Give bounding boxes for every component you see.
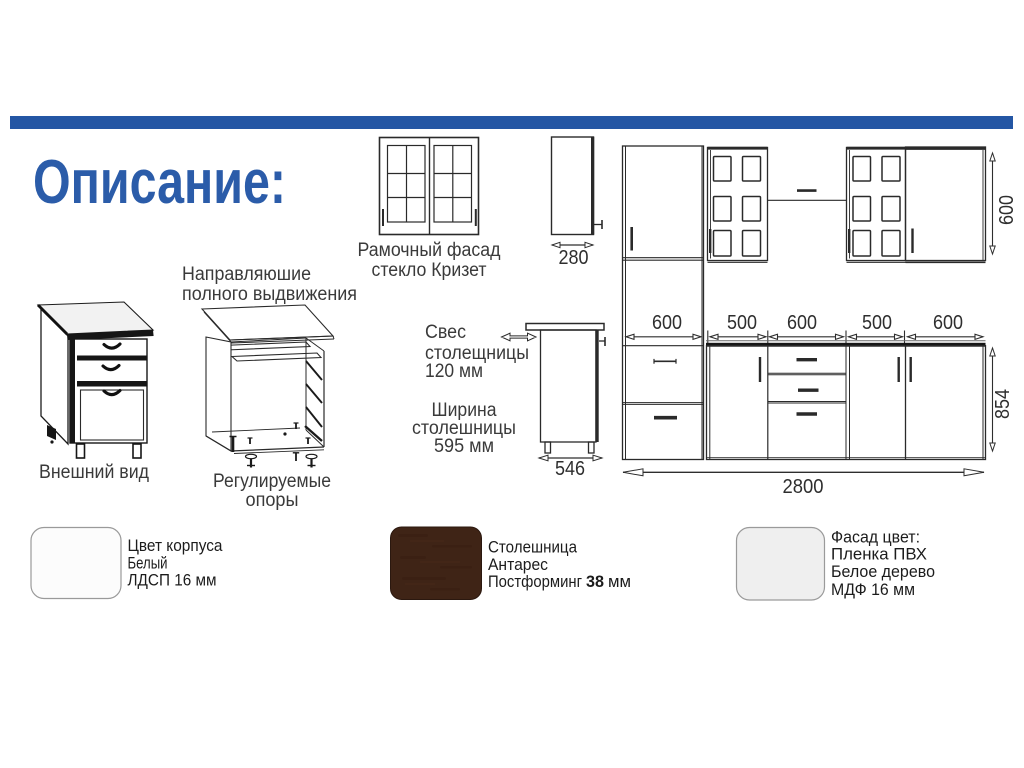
svg-text:546: 546 [555, 458, 585, 480]
svg-text:Цвет корпуса: Цвет корпуса [128, 536, 223, 555]
svg-text:опоры: опоры [246, 490, 299, 511]
svg-text:Постформинг: Постформинг [488, 572, 582, 591]
svg-text:Направляюшие: Направляюшие [182, 264, 311, 285]
svg-text:600: 600 [652, 312, 682, 334]
svg-text:мм: мм [608, 572, 631, 591]
svg-text:2800: 2800 [783, 476, 824, 498]
svg-text:стекло Кризет: стекло Кризет [372, 260, 487, 281]
svg-text:Описание:: Описание: [33, 148, 286, 217]
svg-text:600: 600 [996, 195, 1018, 225]
svg-text:120 мм: 120 мм [425, 361, 483, 382]
svg-text:600: 600 [787, 312, 817, 334]
svg-text:Регулируемые: Регулируемые [213, 471, 331, 492]
svg-text:500: 500 [862, 312, 892, 334]
svg-text:Пленка ПВХ: Пленка ПВХ [831, 545, 927, 564]
svg-text:Рамочный фасад: Рамочный фасад [358, 240, 501, 261]
svg-text:МДФ 16 мм: МДФ 16 мм [831, 580, 915, 599]
svg-text:полного выдвижения: полного выдвижения [182, 284, 357, 305]
svg-text:280: 280 [559, 247, 589, 269]
svg-text:ЛДСП 16 мм: ЛДСП 16 мм [128, 571, 217, 590]
svg-text:Внешний вид: Внешний вид [39, 462, 149, 483]
svg-text:600: 600 [933, 312, 963, 334]
svg-text:Свес: Свес [425, 322, 466, 343]
svg-text:Столешница: Столешница [488, 538, 577, 557]
svg-text:595 мм: 595 мм [434, 436, 494, 457]
svg-text:38: 38 [586, 572, 604, 591]
svg-text:Белое дерево: Белое дерево [831, 562, 935, 581]
svg-text:500: 500 [727, 312, 757, 334]
svg-text:854: 854 [992, 389, 1014, 419]
